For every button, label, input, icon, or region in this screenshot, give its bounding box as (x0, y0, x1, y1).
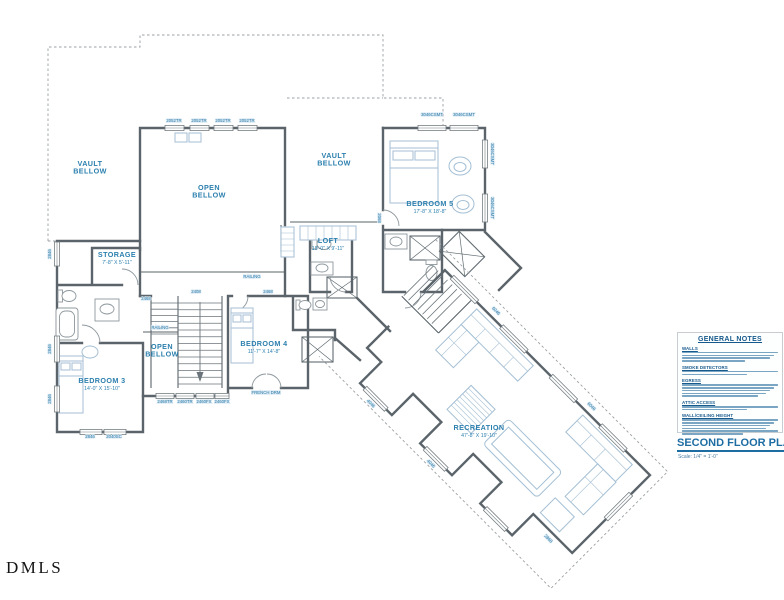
notes-section-heading: EGRESS (682, 378, 778, 383)
code-label: 2846 (85, 434, 95, 439)
recreation-wing: 60466046404640462868 (319, 240, 668, 589)
code-label: 3046CSMT (421, 112, 443, 117)
notes-text-line (682, 352, 778, 354)
toilet (58, 290, 76, 302)
armchair (452, 195, 474, 213)
notes-text-line (682, 371, 778, 373)
bathtub-inner (60, 311, 75, 337)
chair (82, 346, 98, 358)
code-label: 2846 (47, 394, 52, 404)
general-notes-sections: WALLSSMOKE DETECTORSEGRESSATTIC ACCESSWA… (682, 346, 778, 435)
code-label: 2460FX (214, 399, 229, 404)
floor-plan-page: 60466046404640462868 VAULTBELLOWOPENBELL… (0, 0, 784, 600)
stair-direction-arrow (197, 302, 204, 382)
powder-sink (313, 298, 327, 310)
cabinet (175, 133, 201, 142)
code-label: 3046CSMT (490, 197, 495, 219)
notes-text-line (682, 384, 778, 386)
code-label: 2052TR (239, 118, 254, 123)
window-seat (281, 227, 294, 257)
code-label: RAILING (243, 274, 261, 279)
code-label: 6046 (491, 306, 502, 317)
notes-text-line (682, 422, 774, 424)
code-label: 2460FX (196, 399, 211, 404)
room-label-vault-bellow-nw: VAULTBELLOW (73, 159, 107, 176)
code-label: 2468TR (157, 399, 172, 404)
code-label: 2052TR (166, 118, 181, 123)
notes-section-heading: SMOKE DETECTORS (682, 365, 778, 370)
code-label: 2468 (141, 296, 151, 301)
notes-section-heading: WALL/CEILING HEIGHT (682, 413, 778, 418)
notes-text-line (682, 360, 745, 362)
notes-text-line (682, 409, 747, 411)
notes-section-heading: ATTIC ACCESS (682, 400, 778, 405)
code-label: 2052TR (191, 118, 206, 123)
plan-title: SECOND FLOOR PLAN (677, 437, 784, 452)
vanity-sink (95, 299, 119, 321)
code-label: RAILING (151, 325, 169, 330)
sectional-sofa (436, 309, 534, 407)
notes-text-line (682, 387, 774, 389)
floor-plan-drawing: 60466046404640462868 VAULTBELLOWOPENBELL… (0, 0, 784, 600)
notes-text-line (682, 433, 743, 435)
notes-text-line (682, 357, 770, 359)
wing-roofline-dashed (319, 240, 668, 589)
watermark: DMLS (6, 558, 63, 578)
code-label: 3046CSMT (453, 112, 475, 117)
plan-scale: Scale: 1/4" = 1'-0" (678, 454, 718, 460)
code-label: 3046CSMT (490, 143, 495, 165)
code-label: 2846 (47, 344, 52, 354)
notes-text-line (682, 425, 770, 427)
notes-text-line (682, 430, 778, 432)
general-notes-title: GENERAL NOTES (682, 336, 778, 343)
code-label: 2068 (377, 213, 382, 223)
room-label-open-bellow-main: OPENBELLOW (192, 183, 226, 200)
room-label-vault-bellow-center: VAULTBELLOW (317, 151, 351, 168)
room-label-bedroom-4: BEDROOM 411'-7" X 14'-8" (240, 339, 287, 355)
code-label: 2040SC (106, 434, 122, 439)
vanity-sink (385, 234, 407, 249)
notes-text-line (682, 406, 778, 408)
notes-text-line (682, 419, 778, 421)
code-label: 2846 (47, 249, 52, 259)
furniture (59, 133, 474, 413)
notes-text-line (682, 393, 766, 395)
notes-section-heading: WALLS (682, 346, 778, 351)
notes-text-line (682, 355, 774, 357)
closet-box (410, 236, 440, 260)
room-label-storage: STORAGE7'-8" X 5'-11" (98, 250, 136, 266)
armchair (449, 157, 471, 175)
general-notes-panel: GENERAL NOTES WALLSSMOKE DETECTORSEGRESS… (677, 332, 783, 433)
shower-box (302, 337, 333, 362)
code-label: FRENCH DRM (252, 390, 281, 395)
notes-text-line (682, 374, 747, 376)
room-label-bedroom-5: BEDROOM 517'-8" X 18'-8" (406, 199, 453, 215)
toilet (296, 300, 311, 310)
code-label: 2460TR (177, 399, 192, 404)
code-label: 2468 (263, 289, 273, 294)
code-label: 6046 (586, 401, 597, 412)
notes-text-line (682, 395, 758, 397)
code-label: 2052TR (215, 118, 230, 123)
code-label: 2408 (191, 289, 201, 294)
notes-text-line (682, 428, 766, 430)
bed-bedroom5 (390, 141, 438, 203)
room-label-bedroom-3: BEDROOM 314'-0" X 15'-10" (78, 376, 125, 392)
vanity-sink (311, 262, 333, 275)
notes-text-line (682, 390, 770, 392)
room-label-open-bellow-stair: OPENBELLOW (145, 342, 179, 359)
